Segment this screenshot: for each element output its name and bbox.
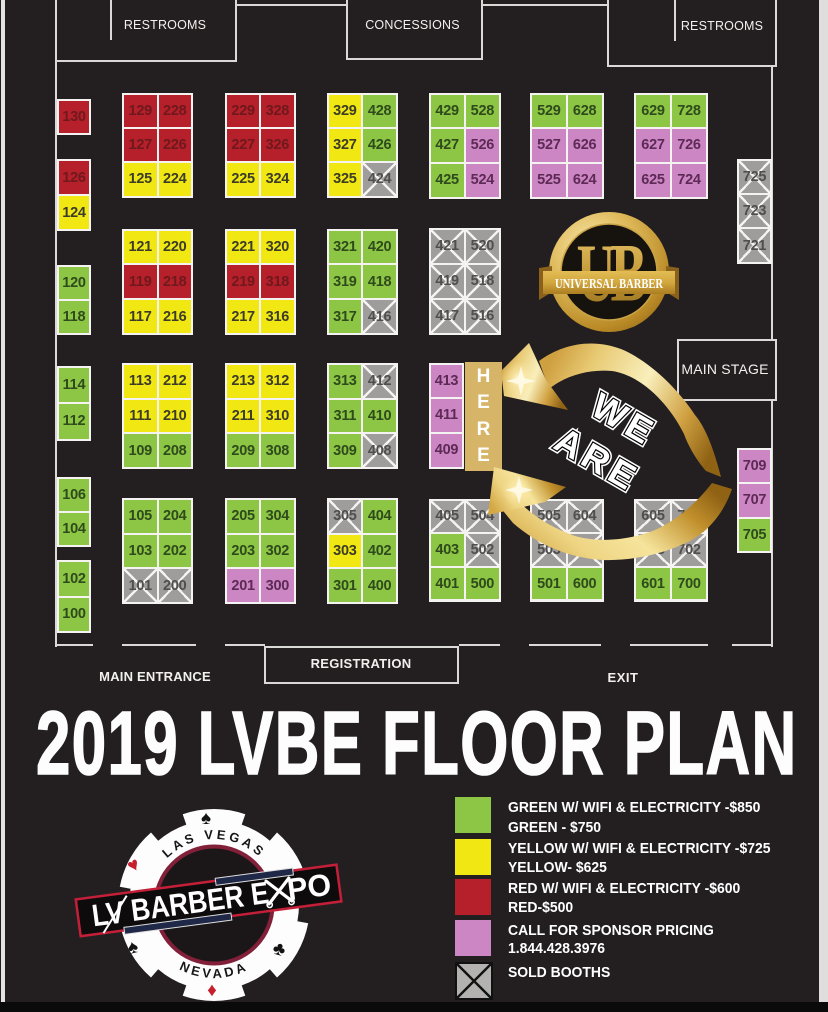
svg-text:♠: ♠ (201, 808, 211, 829)
svg-text:UNIVERSAL BARBER: UNIVERSAL BARBER (555, 276, 663, 291)
svg-text:♦: ♦ (207, 980, 217, 1001)
